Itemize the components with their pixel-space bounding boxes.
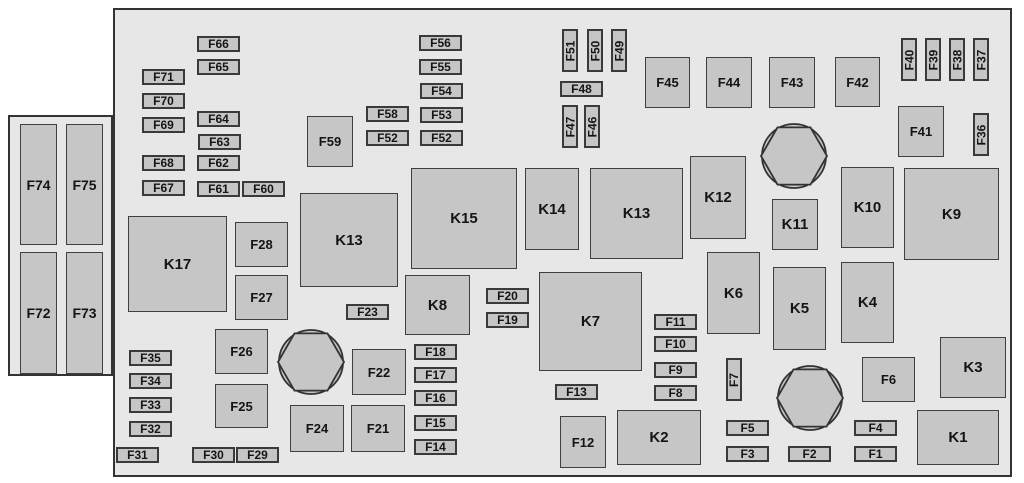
relay-k1-label: K1	[948, 429, 967, 446]
fuse-f27: F27	[235, 275, 288, 320]
fuse-f64: F64	[197, 111, 240, 127]
fuse-f68-label: F68	[153, 156, 174, 170]
fuse-f13-label: F13	[566, 385, 587, 399]
fuse-f63: F63	[198, 134, 241, 150]
fuse-f39-label: F39	[926, 49, 940, 70]
fuse-f55: F55	[419, 59, 462, 75]
fuse-f29-label: F29	[247, 448, 268, 462]
fuse-f54-label: F54	[431, 84, 452, 98]
fuse-box-diagram: F66F65F71F70F69F64F63F68F62F67F61F60F56F…	[0, 0, 1024, 483]
hex-bolt-icon	[758, 120, 830, 192]
fuse-f9-label: F9	[668, 363, 682, 377]
fuse-f1: F1	[854, 446, 897, 462]
fuse-f11-label: F11	[665, 315, 685, 329]
fuse-f43-label: F43	[781, 75, 803, 90]
fuse-f53-label: F53	[431, 108, 452, 122]
fuse-f18: F18	[414, 344, 457, 360]
fuse-f30-label: F30	[203, 448, 224, 462]
fuse-f23: F23	[346, 304, 389, 320]
fuse-f32: F32	[129, 421, 172, 437]
fuse-f52-label: F52	[377, 131, 398, 145]
fuse-f33-label: F33	[140, 398, 161, 412]
fuse-f42: F42	[835, 57, 880, 107]
fuse-f5: F5	[726, 420, 769, 436]
relay-k13-label: K13	[335, 232, 363, 249]
fuse-f39: F39	[925, 38, 941, 81]
relay-k2: K2	[617, 410, 701, 465]
fuse-f60: F60	[242, 181, 285, 197]
fuse-f7: F7	[726, 358, 742, 401]
fuse-f20-label: F20	[497, 289, 518, 303]
fuse-f40: F40	[901, 38, 917, 81]
fuse-f36-label: F36	[974, 124, 988, 145]
fuse-f32-label: F32	[140, 422, 161, 436]
fuse-f17: F17	[414, 367, 457, 383]
relay-k11: K11	[772, 199, 818, 250]
fuse-f51: F51	[562, 29, 578, 72]
fuse-f59-label: F59	[319, 134, 341, 149]
fuse-f21: F21	[351, 405, 405, 452]
fuse-f55-label: F55	[430, 60, 451, 74]
fuse-f35: F35	[129, 350, 172, 366]
relay-k15: K15	[411, 168, 517, 269]
fuse-f31: F31	[116, 447, 159, 463]
fuse-f38: F38	[949, 38, 965, 81]
relay-k14: K14	[525, 168, 579, 250]
connector-slot-f74: F74	[20, 124, 57, 245]
fuse-f25: F25	[215, 384, 268, 428]
fuse-f62-label: F62	[208, 156, 229, 170]
hex-bolt-icon	[774, 362, 846, 434]
fuse-f29: F29	[236, 447, 279, 463]
fuse-f45-label: F45	[656, 75, 678, 90]
fuse-f49-label: F49	[612, 40, 626, 61]
fuse-f3-label: F3	[740, 447, 754, 461]
relay-k1: K1	[917, 410, 999, 465]
fuse-f60-label: F60	[253, 182, 274, 196]
relay-k17: K17	[128, 216, 227, 312]
relay-k8-label: K8	[428, 297, 447, 314]
fuse-f3: F3	[726, 446, 769, 462]
relay-k12-label: K12	[704, 189, 732, 206]
fuse-f53: F53	[420, 107, 463, 123]
fuse-f6-label: F6	[881, 372, 896, 387]
fuse-f61-label: F61	[208, 182, 229, 196]
fuse-f1-label: F1	[868, 447, 882, 461]
relay-k10-label: K10	[854, 199, 882, 216]
fuse-f15: F15	[414, 415, 457, 431]
fuse-f23-label: F23	[357, 305, 378, 319]
fuse-f52-2: F52	[420, 130, 463, 146]
relay-k9: K9	[904, 168, 999, 260]
fuse-f8-label: F8	[668, 386, 682, 400]
fuse-f4-label: F4	[868, 421, 882, 435]
connector-slot-f75-label: F75	[72, 177, 96, 193]
fuse-f28: F28	[235, 222, 288, 267]
fuse-f42-label: F42	[846, 75, 868, 90]
fuse-f30: F30	[192, 447, 235, 463]
relay-k7: K7	[539, 272, 642, 371]
fuse-f44: F44	[706, 57, 752, 108]
fuse-f69-label: F69	[153, 118, 174, 132]
fuse-f58: F58	[366, 106, 409, 122]
connector-slot-f72-label: F72	[26, 305, 50, 321]
fuse-f47-label: F47	[563, 116, 577, 137]
fuse-f16: F16	[414, 390, 457, 406]
fuse-f38-label: F38	[950, 49, 964, 70]
fuse-f51-label: F51	[563, 40, 577, 61]
relay-k17-label: K17	[164, 256, 192, 273]
fuse-f31-label: F31	[127, 448, 148, 462]
fuse-f61: F61	[197, 181, 240, 197]
fuse-f10: F10	[654, 336, 697, 352]
fuse-f50: F50	[587, 29, 603, 72]
fuse-f48-label: F48	[571, 82, 592, 96]
connector-slot-f73-label: F73	[72, 305, 96, 321]
fuse-f46: F46	[584, 105, 600, 148]
fuse-f48: F48	[560, 81, 603, 97]
fuse-f71: F71	[142, 69, 185, 85]
connector-slot-f75: F75	[66, 124, 103, 245]
fuse-f13: F13	[555, 384, 598, 400]
fuse-f44-label: F44	[718, 75, 740, 90]
connector-slot-f73: F73	[66, 252, 103, 374]
fuse-f6: F6	[862, 357, 915, 402]
fuse-f34: F34	[129, 373, 172, 389]
fuse-f64-label: F64	[208, 112, 229, 126]
fuse-f52: F52	[366, 130, 409, 146]
relay-k13-2: K13	[590, 168, 683, 259]
fuse-f66-label: F66	[208, 37, 229, 51]
connector-slot-f72: F72	[20, 252, 57, 374]
fuse-f12: F12	[560, 416, 606, 468]
fuse-f37-label: F37	[974, 49, 988, 70]
fuse-f8: F8	[654, 385, 697, 401]
fuse-f21-label: F21	[367, 421, 389, 436]
relay-k11-label: K11	[782, 216, 809, 233]
fuse-f24-label: F24	[306, 421, 328, 436]
fuse-f43: F43	[769, 57, 815, 108]
hex-bolt-icon	[275, 326, 347, 398]
fuse-f41: F41	[898, 106, 944, 157]
relay-k8: K8	[405, 275, 470, 335]
fuse-f50-label: F50	[588, 40, 602, 61]
fuse-f17-label: F17	[425, 368, 446, 382]
fuse-f2: F2	[788, 446, 831, 462]
fuse-f28-label: F28	[250, 237, 272, 252]
fuse-f2-label: F2	[802, 447, 816, 461]
fuse-f24: F24	[290, 405, 344, 452]
relay-k3: K3	[940, 337, 1006, 398]
fuse-f15-label: F15	[425, 416, 446, 430]
fuse-f68: F68	[142, 155, 185, 171]
fuse-f33: F33	[129, 397, 172, 413]
fuse-f63-label: F63	[209, 135, 230, 149]
fuse-f26-label: F26	[230, 344, 252, 359]
relay-k12: K12	[690, 156, 746, 239]
fuse-f66: F66	[197, 36, 240, 52]
fuse-f34-label: F34	[140, 374, 161, 388]
relay-k2-label: K2	[649, 429, 668, 446]
fuse-f56: F56	[419, 35, 462, 51]
fuse-f67-label: F67	[153, 181, 174, 195]
fuse-f22: F22	[352, 349, 406, 395]
fuse-f41-label: F41	[910, 124, 932, 139]
fuse-f65: F65	[197, 59, 240, 75]
relay-k15-label: K15	[450, 210, 478, 227]
fuse-f56-label: F56	[430, 36, 451, 50]
fuse-f7-label: F7	[727, 372, 741, 386]
connector-slot-f74-label: F74	[26, 177, 50, 193]
fuse-f19: F19	[486, 312, 529, 328]
relay-k7-label: K7	[581, 313, 600, 330]
relay-k13-2-label: K13	[623, 205, 651, 222]
fuse-f12-label: F12	[572, 435, 594, 450]
fuse-f19-label: F19	[497, 313, 518, 327]
fuse-f20: F20	[486, 288, 529, 304]
relay-k5-label: K5	[790, 300, 809, 317]
fuse-f46-label: F46	[585, 116, 599, 137]
fuse-f40-label: F40	[902, 49, 916, 70]
relay-k10: K10	[841, 167, 894, 248]
relay-k13: K13	[300, 193, 398, 287]
fuse-f16-label: F16	[425, 391, 446, 405]
fuse-f26: F26	[215, 329, 268, 374]
fuse-f36: F36	[973, 113, 989, 156]
fuse-f49: F49	[611, 29, 627, 72]
fuse-f71-label: F71	[153, 70, 174, 84]
fuse-f14: F14	[414, 439, 457, 455]
relay-k3-label: K3	[963, 359, 982, 376]
fuse-f11: F11	[654, 314, 697, 330]
fuse-f59: F59	[307, 116, 353, 167]
relay-k5: K5	[773, 267, 826, 350]
fuse-f47: F47	[562, 105, 578, 148]
fuse-f52-2-label: F52	[431, 131, 452, 145]
fuse-f58-label: F58	[377, 107, 398, 121]
fuse-f18-label: F18	[425, 345, 446, 359]
fuse-f25-label: F25	[230, 399, 252, 414]
fuse-f5-label: F5	[740, 421, 754, 435]
fuse-f37: F37	[973, 38, 989, 81]
relay-k6: K6	[707, 252, 760, 334]
fuse-f27-label: F27	[250, 290, 272, 305]
fuse-f45: F45	[645, 57, 690, 108]
fuse-f54: F54	[420, 83, 463, 99]
fuse-f4: F4	[854, 420, 897, 436]
fuse-f14-label: F14	[425, 440, 446, 454]
fuse-f35-label: F35	[140, 351, 161, 365]
fuse-f10-label: F10	[665, 337, 686, 351]
relay-k9-label: K9	[942, 206, 961, 223]
fuse-f67: F67	[142, 180, 185, 196]
relay-k4: K4	[841, 262, 894, 343]
fuse-f65-label: F65	[208, 60, 229, 74]
fuse-f70: F70	[142, 93, 185, 109]
relay-k6-label: K6	[724, 285, 743, 302]
relay-k14-label: K14	[538, 201, 566, 218]
relay-k4-label: K4	[858, 294, 877, 311]
fuse-f70-label: F70	[153, 94, 174, 108]
fuse-f69: F69	[142, 117, 185, 133]
fuse-f62: F62	[197, 155, 240, 171]
fuse-f9: F9	[654, 362, 697, 378]
fuse-f22-label: F22	[368, 365, 390, 380]
